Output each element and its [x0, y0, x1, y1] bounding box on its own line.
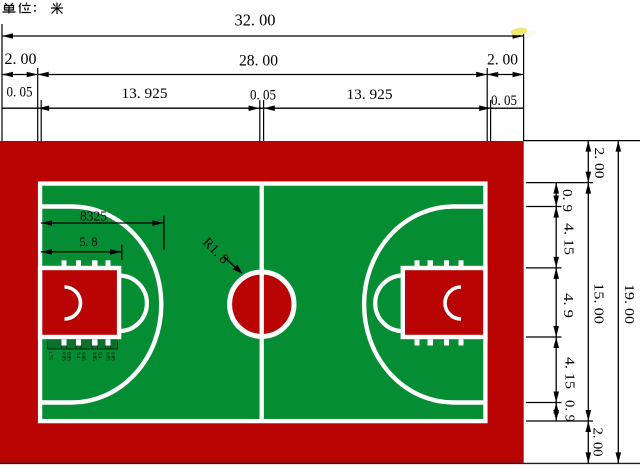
svg-text:0.4: 0.4: [75, 352, 80, 359]
svg-text:0.85: 0.85: [66, 352, 71, 361]
svg-text:2. 00: 2. 00: [591, 148, 606, 179]
svg-text:0.85: 0.85: [105, 352, 110, 361]
svg-text:2. 00: 2. 00: [487, 52, 518, 69]
svg-text:2. 00: 2. 00: [590, 428, 605, 457]
svg-text:0. 9: 0. 9: [562, 400, 577, 422]
svg-text:0. 9: 0. 9: [559, 189, 574, 212]
svg-text:0. 05: 0. 05: [491, 93, 517, 109]
svg-text:0.85: 0.85: [110, 352, 115, 361]
svg-text:5. 8: 5. 8: [80, 234, 98, 249]
svg-text:0. 05: 0. 05: [250, 88, 276, 104]
svg-text:15. 00: 15. 00: [591, 283, 606, 324]
svg-text:0.85: 0.85: [91, 352, 96, 361]
svg-text:0.4: 0.4: [97, 352, 102, 359]
svg-text:8325: 8325: [80, 209, 107, 224]
svg-text:4. 15: 4. 15: [562, 357, 577, 389]
svg-text:13. 925: 13. 925: [347, 87, 393, 103]
svg-text:0.85: 0.85: [61, 352, 66, 361]
svg-text:4. 15: 4. 15: [561, 223, 576, 255]
svg-text:13. 925: 13. 925: [122, 86, 168, 102]
svg-text:0. 05: 0. 05: [7, 85, 33, 101]
svg-text:4. 9: 4. 9: [560, 293, 575, 318]
svg-text:19. 00: 19. 00: [621, 284, 636, 324]
svg-text:32. 00: 32. 00: [235, 11, 276, 30]
svg-text:28. 00: 28. 00: [239, 53, 278, 70]
svg-text:2. 00: 2. 00: [5, 51, 37, 68]
svg-text:1.75: 1.75: [47, 351, 52, 360]
svg-text:0.85: 0.85: [80, 352, 85, 361]
